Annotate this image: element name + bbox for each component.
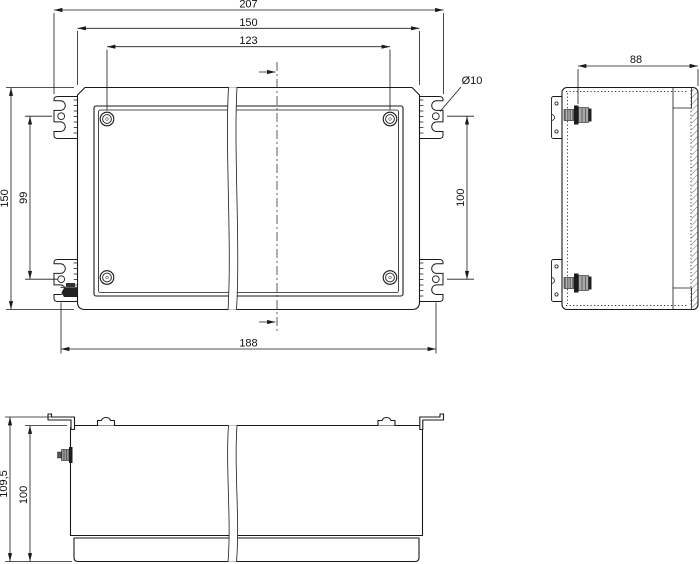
enclosure-body-elevation — [71, 426, 423, 536]
side-view: 88 — [552, 54, 699, 310]
dim-bracket-hole-spacing-right-label: 100 — [455, 189, 467, 207]
cover-screw-bottom-right — [383, 271, 397, 285]
cover-screw-bottom-left — [100, 271, 114, 285]
dim-elevation-body-height-label: 100 — [18, 486, 30, 504]
dim-overall-height-label: 150 — [0, 189, 11, 207]
dim-depth-label: 88 — [630, 54, 642, 66]
dim-overall-width-label: 207 — [239, 0, 257, 11]
cover-screw-top-right — [383, 112, 397, 126]
enclosure-body-front — [78, 88, 420, 310]
dim-bracket-hole-diameter-label: Ø10 — [462, 75, 483, 87]
dim-cover-screw-spacing-label: 123 — [239, 35, 257, 47]
cover-section-hatch — [692, 89, 699, 308]
cover-elevation — [74, 538, 419, 562]
dim-elevation-overall-height-label: 109,5 — [0, 470, 10, 498]
dim-bracket-hole-spacing-horizontal-label: 188 — [239, 338, 257, 350]
dim-bracket-hole-spacing-left-label: 99 — [18, 192, 30, 204]
technical-drawing-page: 207 150 123 150 99 — [0, 0, 700, 564]
dim-body-width-label: 150 — [239, 17, 257, 29]
cover-screw-top-left — [100, 112, 114, 126]
technical-drawing: 207 150 123 150 99 — [0, 0, 700, 564]
